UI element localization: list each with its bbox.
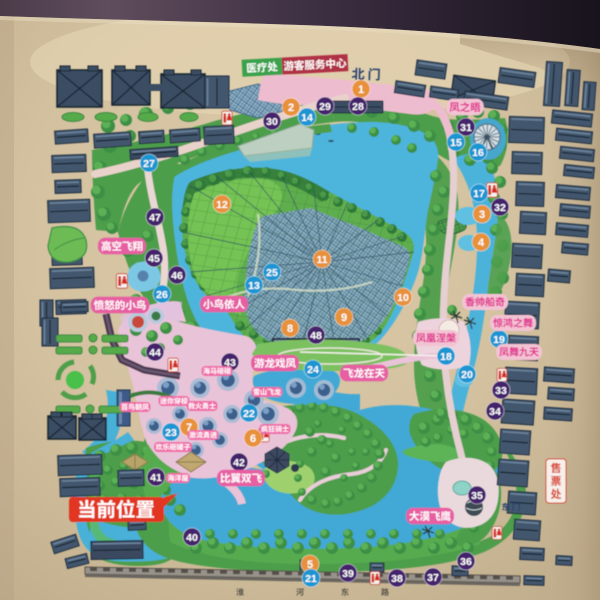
svg-text:香帅船奇: 香帅船奇 xyxy=(465,294,505,309)
svg-text:8: 8 xyxy=(287,323,293,335)
svg-text:2: 2 xyxy=(288,102,294,114)
svg-text:4: 4 xyxy=(478,237,485,249)
svg-text:26: 26 xyxy=(156,289,168,301)
svg-text:北 门: 北 门 xyxy=(351,64,381,84)
svg-text:27: 27 xyxy=(143,158,155,170)
svg-text:3: 3 xyxy=(479,209,485,221)
svg-text:6: 6 xyxy=(250,433,256,445)
svg-text:45: 45 xyxy=(148,253,160,265)
svg-text:愤怒的小鸟: 愤怒的小鸟 xyxy=(94,298,147,313)
svg-text:34: 34 xyxy=(489,406,501,418)
svg-text:42: 42 xyxy=(233,457,245,469)
svg-text:41: 41 xyxy=(150,472,162,484)
svg-text:12: 12 xyxy=(216,199,228,211)
svg-text:35: 35 xyxy=(471,490,483,502)
svg-text:海洋屋: 海洋屋 xyxy=(168,474,189,484)
svg-text:凤之晤: 凤之晤 xyxy=(449,100,481,115)
svg-text:东 门: 东 门 xyxy=(502,501,521,513)
svg-text:凤舞九天: 凤舞九天 xyxy=(499,344,539,359)
svg-text:海马碰碰: 海马碰碰 xyxy=(203,367,231,377)
svg-text:14: 14 xyxy=(301,112,313,124)
svg-text:11: 11 xyxy=(316,254,327,266)
svg-text:20: 20 xyxy=(461,369,473,381)
svg-text:9: 9 xyxy=(341,312,347,324)
svg-text:38: 38 xyxy=(391,573,403,585)
svg-text:凤凰涅槃: 凤凰涅槃 xyxy=(416,330,456,345)
svg-text:22: 22 xyxy=(243,408,255,420)
svg-text:28: 28 xyxy=(352,101,364,113)
svg-text:16: 16 xyxy=(472,147,484,159)
svg-text:飞龙在天: 飞龙在天 xyxy=(343,366,385,381)
svg-text:路: 路 xyxy=(381,587,389,598)
svg-text:39: 39 xyxy=(342,568,354,580)
svg-text:33: 33 xyxy=(495,385,507,397)
svg-text:大漠飞鹰: 大漠飞鹰 xyxy=(409,509,451,524)
svg-text:21: 21 xyxy=(305,573,317,585)
svg-text:高空飞翔: 高空飞翔 xyxy=(101,239,143,254)
svg-text:惊鸿之舞: 惊鸿之舞 xyxy=(493,315,533,330)
svg-text:疯狂骑士: 疯狂骑士 xyxy=(261,425,289,435)
svg-text:24: 24 xyxy=(307,364,319,376)
svg-text:23: 23 xyxy=(165,427,177,439)
svg-text:47: 47 xyxy=(149,212,161,224)
svg-text:13: 13 xyxy=(248,280,260,292)
svg-text:31: 31 xyxy=(460,122,472,134)
svg-text:小鸟依人: 小鸟依人 xyxy=(203,297,245,312)
svg-text:29: 29 xyxy=(319,101,331,113)
svg-text:25: 25 xyxy=(266,267,278,279)
svg-text:17: 17 xyxy=(473,188,485,200)
svg-text:15: 15 xyxy=(450,137,462,149)
svg-text:游龙戏凤: 游龙戏凤 xyxy=(254,356,296,371)
svg-text:处: 处 xyxy=(551,486,562,502)
svg-text:36: 36 xyxy=(460,556,472,568)
svg-text:欢乐砸罐子: 欢乐砸罐子 xyxy=(156,443,191,453)
svg-text:48: 48 xyxy=(310,330,322,342)
svg-text:救火勇士: 救火勇士 xyxy=(188,402,216,412)
svg-text:1: 1 xyxy=(358,84,364,96)
svg-text:百鸟朝凤: 百鸟朝凤 xyxy=(121,403,149,413)
svg-text:30: 30 xyxy=(266,116,278,128)
svg-text:激流勇进: 激流勇进 xyxy=(189,431,217,441)
svg-text:淮: 淮 xyxy=(236,587,244,598)
svg-text:比翼双飞: 比翼双飞 xyxy=(220,471,262,486)
svg-text:当前位置: 当前位置 xyxy=(77,494,155,523)
svg-text:18: 18 xyxy=(440,351,452,363)
svg-text:32: 32 xyxy=(494,202,506,214)
svg-text:东: 东 xyxy=(341,587,349,598)
svg-text:44: 44 xyxy=(149,347,161,359)
svg-text:河: 河 xyxy=(296,587,304,598)
svg-text:40: 40 xyxy=(186,532,198,544)
svg-text:医疗处: 医疗处 xyxy=(246,59,279,76)
svg-text:37: 37 xyxy=(427,572,439,584)
svg-text:46: 46 xyxy=(171,270,183,282)
svg-text:迷你穿梭: 迷你穿梭 xyxy=(160,397,188,407)
svg-text:雪山飞龙: 雪山飞龙 xyxy=(253,388,281,398)
svg-text:10: 10 xyxy=(397,292,409,304)
